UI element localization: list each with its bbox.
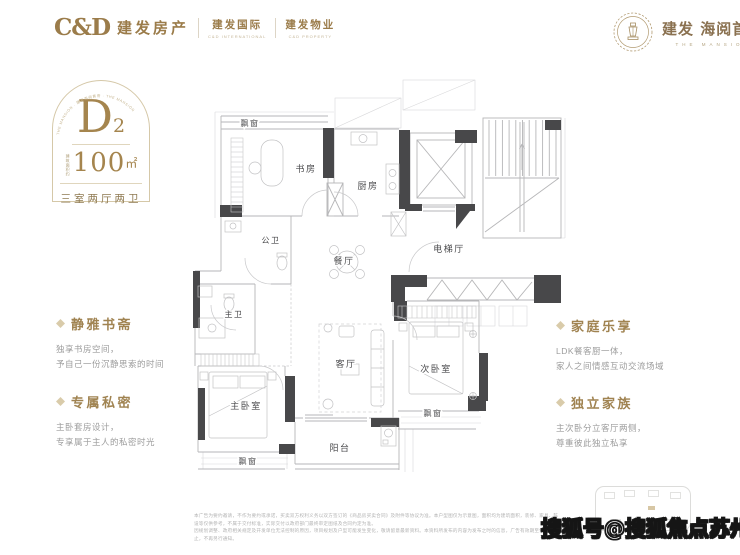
- unit-code: D2: [53, 94, 149, 139]
- room-label: 飘窗: [239, 456, 258, 466]
- feature-independent: 独立家族 主次卧分立客厅两侧， 尊重彼此独立私享: [556, 393, 716, 451]
- brand-property: 建发物业 C&D PROPERTY: [285, 17, 335, 39]
- feature-privacy: 专属私密 主卧套房设计， 专享属于主人的私密时光: [56, 392, 216, 450]
- feature-title: 独立家族: [571, 393, 633, 412]
- feature-title: 静雅书斋: [71, 314, 133, 333]
- feature-line: 专享属于主人的私密时光: [56, 435, 216, 450]
- divider: [275, 18, 276, 38]
- feature-line: 独享书房空间，: [56, 342, 216, 357]
- area-value: 100: [73, 148, 126, 178]
- feature-title: 专属私密: [71, 392, 133, 411]
- disclaimer-line: 本广告为要约邀请，不作为要约或承诺，买卖双方权利义务以双方签订的《商品房买卖合同…: [194, 512, 562, 527]
- project-subtitle: THE MANSION: [662, 42, 740, 47]
- keyplan-unit-marker: [648, 506, 655, 510]
- brand-international: 建发国际 C&D INTERNATIONAL: [208, 17, 266, 39]
- project-brand: 建发: [662, 20, 694, 38]
- unit-badge: THE MANSION · 建发海阅首府 · THE MANSION D2 建筑…: [52, 80, 150, 202]
- project-name: 海阅首府: [700, 20, 740, 38]
- feature-title: 家庭乐享: [571, 316, 633, 335]
- diamond-icon: [56, 397, 65, 406]
- room-label: 书房: [295, 163, 316, 174]
- cd-logo-lockup: C&D 建发房产 建发国际 C&D INTERNATIONAL 建发物业 C&D…: [54, 16, 335, 39]
- feature-line: 主卧套房设计，: [56, 420, 216, 435]
- unit-number: 2: [113, 115, 125, 137]
- room-label: 主卫: [225, 309, 244, 319]
- room-label: 客厅: [335, 358, 356, 369]
- room-label: 次卧室: [420, 363, 452, 374]
- feature-line: 主次卧分立客厅两侧，: [556, 421, 716, 436]
- room-label: 飘窗: [241, 118, 260, 128]
- keyplan-window: [670, 492, 681, 499]
- unit-letter: D: [77, 90, 113, 143]
- feature-line: 家人之间情感互动交流场域: [556, 359, 716, 374]
- feature-line: 予自己一份沉静思索的时间: [56, 357, 216, 372]
- feature-study: 静雅书斋 独享书房空间， 予自己一份沉静思索的时间: [56, 314, 216, 372]
- brand-intl-sub: C&D INTERNATIONAL: [208, 34, 266, 39]
- feature-line: LDK餐客厨一体，: [556, 344, 716, 359]
- feature-line: 尊重彼此独立私享: [556, 436, 716, 451]
- divider: [60, 183, 142, 184]
- room-label: 电梯厅: [433, 243, 465, 254]
- brand-intl-label: 建发国际: [212, 17, 262, 32]
- divider: [72, 144, 130, 145]
- watermark: 搜狐号@搜狐焦点苏州站: [541, 513, 740, 543]
- project-title: 建发 海阅首府: [662, 18, 740, 39]
- divider: [198, 18, 199, 38]
- brand-prop-label: 建发物业: [285, 17, 335, 32]
- room-label: 飘窗: [424, 408, 443, 418]
- keyplan-window: [604, 492, 615, 499]
- area-prefix: 建筑面积约: [65, 154, 71, 172]
- cd-logo: C&D: [54, 16, 110, 39]
- project-lockup: 建发 海阅首府 THE MANSION: [612, 11, 740, 53]
- floorplan-walls: [195, 116, 561, 470]
- floorplan-secondary-lines: [201, 80, 565, 472]
- brand-prop-sub: C&D PROPERTY: [289, 34, 333, 39]
- project-seal-icon: [612, 11, 654, 53]
- floorplan: 飘窗 书房 厨房 公卫 餐厅 电梯厅 主卫 客厅 次卧室 主卧室 阳台 飘窗 飘…: [193, 66, 577, 490]
- room-label: 厨房: [357, 180, 378, 191]
- disclaimer: 本广告为要约邀请，不作为要约或承诺，买卖双方权利义务以双方签订的《商品房买卖合同…: [194, 512, 562, 542]
- feature-family: 家庭乐享 LDK餐客厨一体， 家人之间情感互动交流场域: [556, 316, 716, 374]
- poster: C&D 建发房产 建发国际 C&D INTERNATIONAL 建发物业 C&D…: [0, 0, 740, 555]
- project-title-block: 建发 海阅首府 THE MANSION: [662, 18, 740, 47]
- brand-main-label: 建发房产: [117, 17, 189, 38]
- keyplan-window: [624, 490, 635, 497]
- disclaimer-line: 因规划调整、政府相关规定及开发单位无法控制的原因，项目规划及户型可能发生变化，敬…: [194, 527, 562, 542]
- keyplan-window: [648, 490, 659, 497]
- unit-area: 建筑面积约100㎡: [53, 148, 149, 178]
- diamond-icon: [56, 319, 65, 328]
- unit-layout: 三室两厅两卫: [53, 191, 149, 206]
- room-label: 公卫: [262, 236, 281, 245]
- area-unit: ㎡: [125, 157, 137, 171]
- room-label: 餐厅: [333, 255, 354, 266]
- room-label: 主卧室: [230, 400, 262, 411]
- room-label: 阳台: [329, 442, 350, 453]
